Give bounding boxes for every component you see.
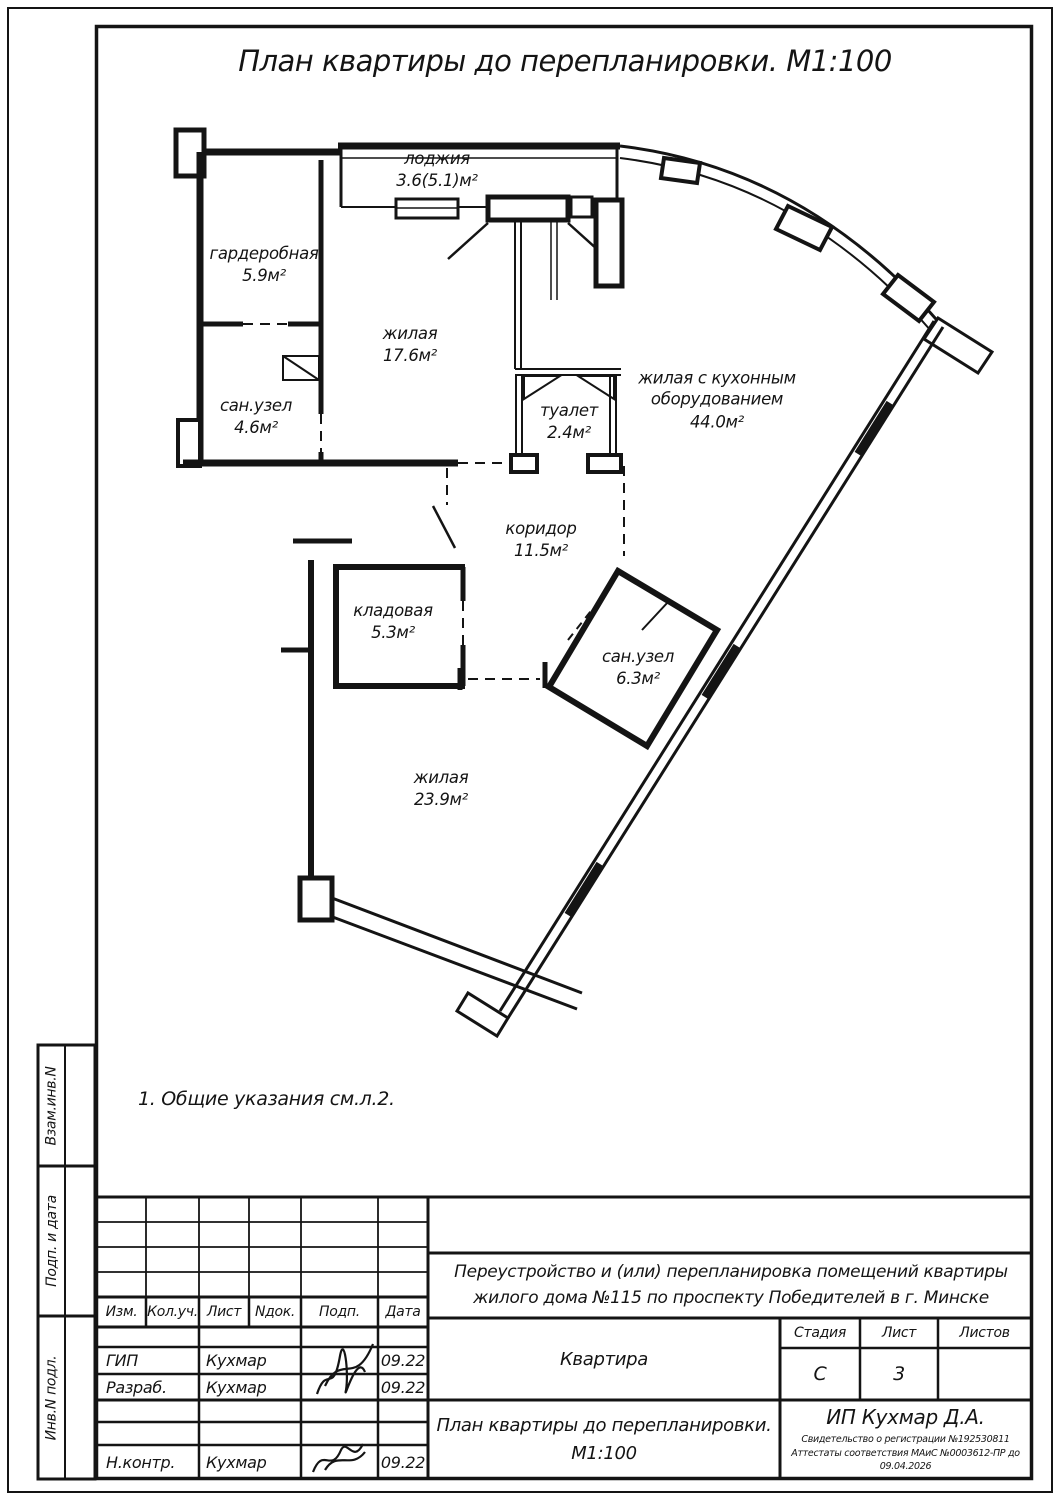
room-area: 2.4м² — [514, 423, 624, 444]
room-label-living-23-9: жилая 23.9м² — [376, 767, 506, 811]
project-description: Переустройство и (или) перепланировка по… — [436, 1253, 1026, 1318]
room-label-loggia: лоджия 3.6(5.1)м² — [352, 148, 522, 192]
room-area: 17.6м² — [335, 346, 485, 367]
stage-label: Стадия — [780, 1318, 860, 1348]
side-label-podp-data: Подп. и дата — [38, 1166, 65, 1316]
signature-nkontr — [313, 1444, 365, 1472]
certificate-1: Свидетельство о регистрации №192530811 — [801, 1433, 1009, 1447]
signature-gip-razrab — [317, 1344, 373, 1394]
room-label-corridor: коридор 11.5м² — [476, 518, 606, 562]
doc-title-line1: План квартиры до перепланировки. — [436, 1412, 771, 1440]
room-area: 11.5м² — [476, 541, 606, 562]
room-label-bathroom-4-6: сан.узел 4.6м² — [181, 395, 331, 439]
room-label-kitchen-living: жилая с кухонным оборудованием 44.0м² — [617, 367, 817, 432]
room-name: кладовая — [328, 600, 458, 621]
doc-title: План квартиры до перепланировки. М1:100 — [428, 1400, 780, 1479]
room-label-bathroom-6-3: сан.узел 6.3м² — [578, 646, 698, 690]
room-area: 44.0м² — [617, 411, 817, 432]
room-label-living-17-6: жилая 17.6м² — [335, 323, 485, 367]
room-name: лоджия — [352, 148, 522, 169]
sheet-value: 3 — [860, 1348, 938, 1400]
side-label-inv-podl: Инв.N подл. — [38, 1316, 65, 1479]
room-area: 5.9м² — [179, 266, 349, 287]
stamp-col-list: Лист — [199, 1297, 249, 1327]
sheets-label: Листов — [938, 1318, 1031, 1348]
object-name: Квартира — [428, 1318, 780, 1400]
stamp-col-data: Дата — [378, 1297, 428, 1327]
signer-role: ГИП — [106, 1347, 196, 1374]
general-note: 1. Общие указания см.л.2. — [138, 1088, 395, 1110]
signer-name: Кухмар — [206, 1374, 298, 1400]
room-label-wardrobe: гардеробная 5.9м² — [179, 243, 349, 287]
room-name: гардеробная — [179, 243, 349, 264]
room-name: сан.узел — [578, 646, 698, 667]
room-name: жилая — [335, 323, 485, 344]
room-area: 23.9м² — [376, 790, 506, 811]
room-name: туалет — [514, 400, 624, 421]
room-name: сан.узел — [181, 395, 331, 416]
room-name: коридор — [476, 518, 606, 539]
signer-date: 09.22 — [378, 1374, 428, 1400]
signer-name: Кухмар — [206, 1347, 298, 1374]
sheets-value — [938, 1348, 1031, 1400]
drawing-sheet: План квартиры до перепланировки. М1:100 … — [0, 0, 1060, 1500]
room-area: 3.6(5.1)м² — [352, 171, 522, 192]
signer-date: 09.22 — [378, 1445, 428, 1479]
signer-role: Разраб. — [106, 1374, 196, 1400]
doc-scale: М1:100 — [571, 1440, 637, 1468]
room-area: 4.6м² — [181, 418, 331, 439]
certificate-2: Аттестаты соответствия МАиС №0003612-ПР … — [780, 1447, 1031, 1475]
signer-date: 09.22 — [378, 1347, 428, 1374]
side-label-vzam-inv: Взам.инв.N — [38, 1045, 65, 1166]
room-area: 5.3м² — [328, 623, 458, 644]
page-title: План квартиры до перепланировки. М1:100 — [97, 44, 1033, 78]
stamp-col-koluch: Кол.уч. — [146, 1297, 199, 1327]
company-block: ИП Кухмар Д.А. Свидетельство о регистрац… — [780, 1400, 1031, 1479]
signer-name: Кухмар — [206, 1445, 298, 1479]
stamp-col-izm: Изм. — [97, 1297, 146, 1327]
stamp-col-ndok: Nдок. — [249, 1297, 301, 1327]
stamp-col-podp: Подп. — [301, 1297, 378, 1327]
room-name: жилая — [376, 767, 506, 788]
room-name: жилая с кухонным оборудованием — [617, 367, 817, 410]
room-label-wc: туалет 2.4м² — [514, 400, 624, 444]
company-name: ИП Кухмар Д.А. — [826, 1405, 984, 1429]
signer-role: Н.контр. — [106, 1445, 196, 1479]
sheet-label: Лист — [860, 1318, 938, 1348]
room-label-storage: кладовая 5.3м² — [328, 600, 458, 644]
room-area: 6.3м² — [578, 669, 698, 690]
stage-value: С — [780, 1348, 860, 1400]
